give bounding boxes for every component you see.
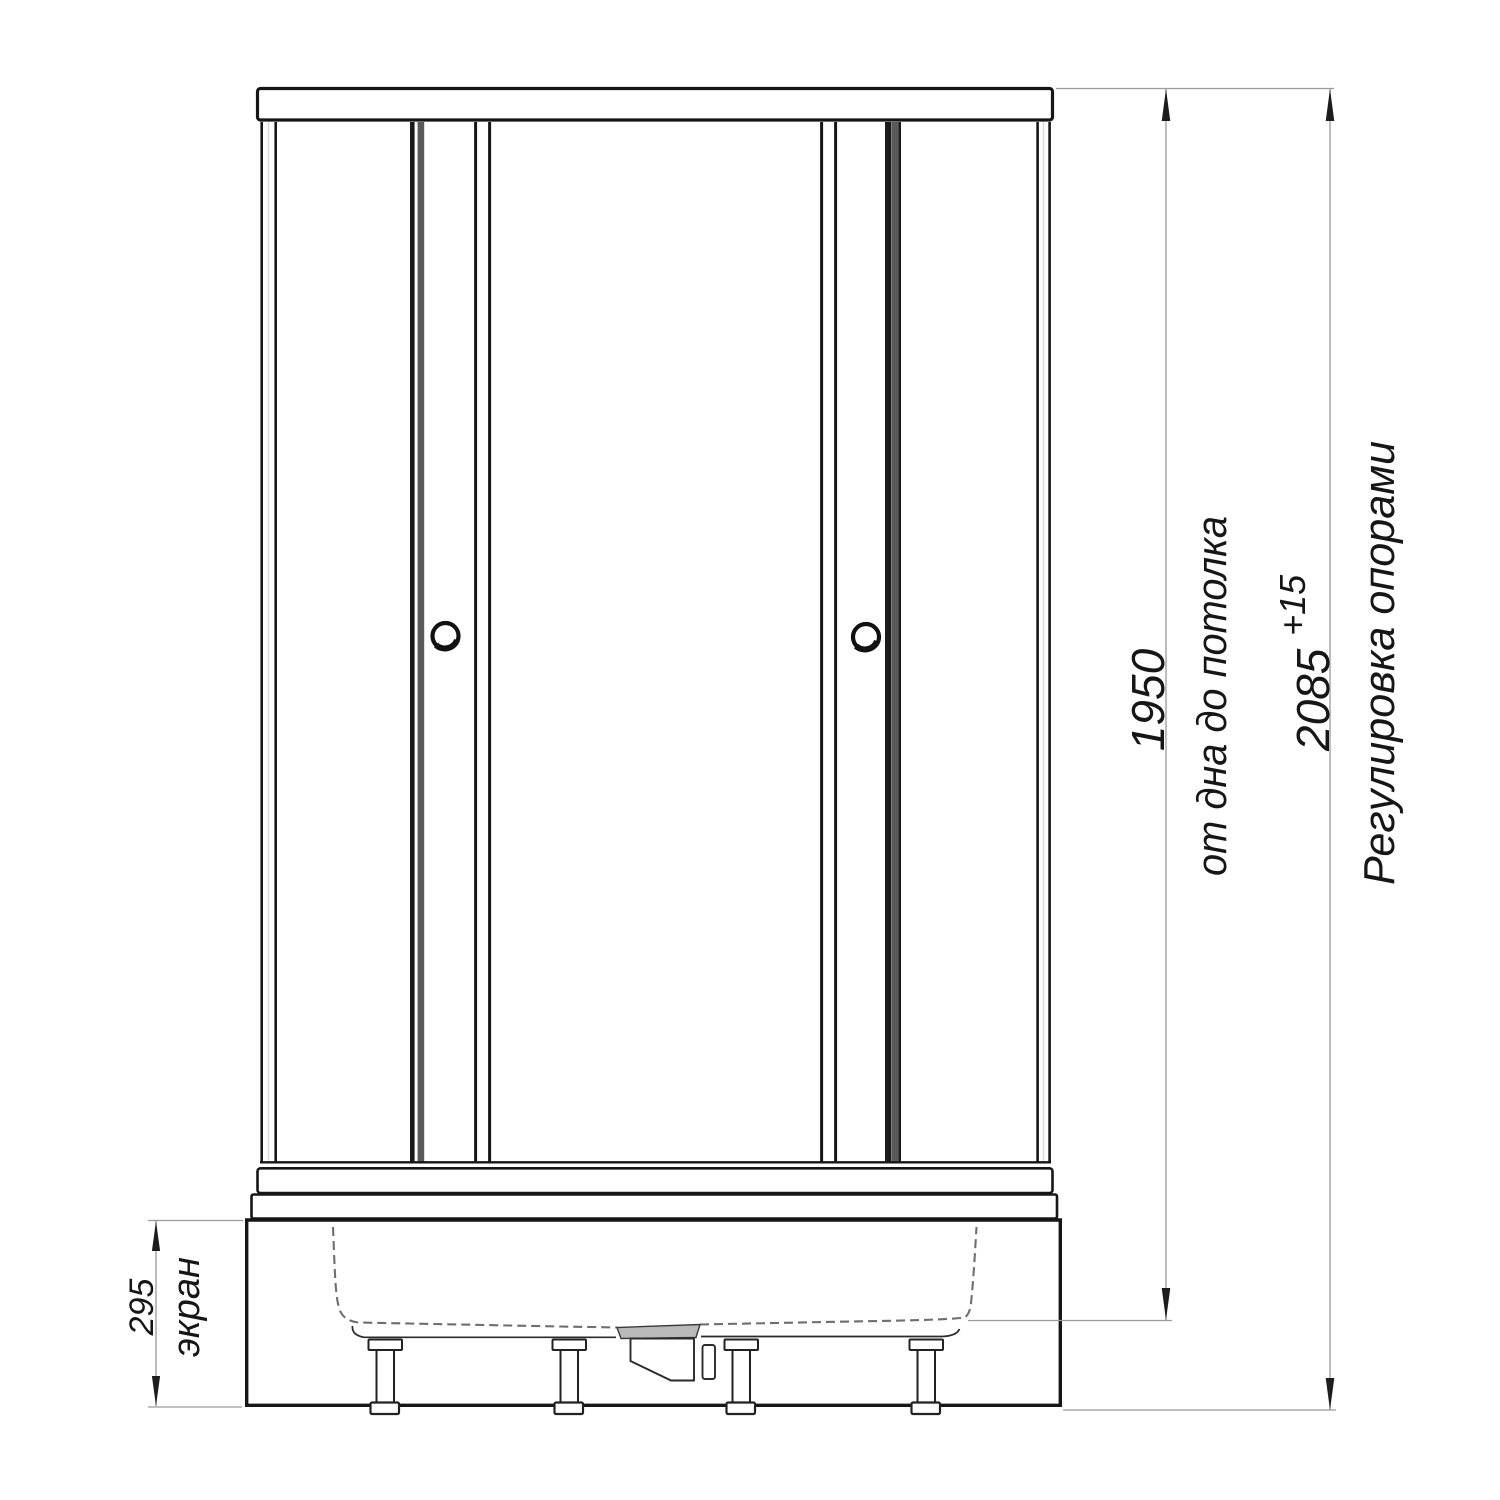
svg-text:Регулировка опорами: Регулировка опорами (1355, 441, 1404, 885)
svg-text:1950: 1950 (1122, 648, 1174, 751)
svg-text:экран: экран (166, 1257, 208, 1357)
svg-text:295: 295 (123, 1279, 161, 1337)
svg-text:от дна до потолка: от дна до потолка (1188, 516, 1235, 876)
